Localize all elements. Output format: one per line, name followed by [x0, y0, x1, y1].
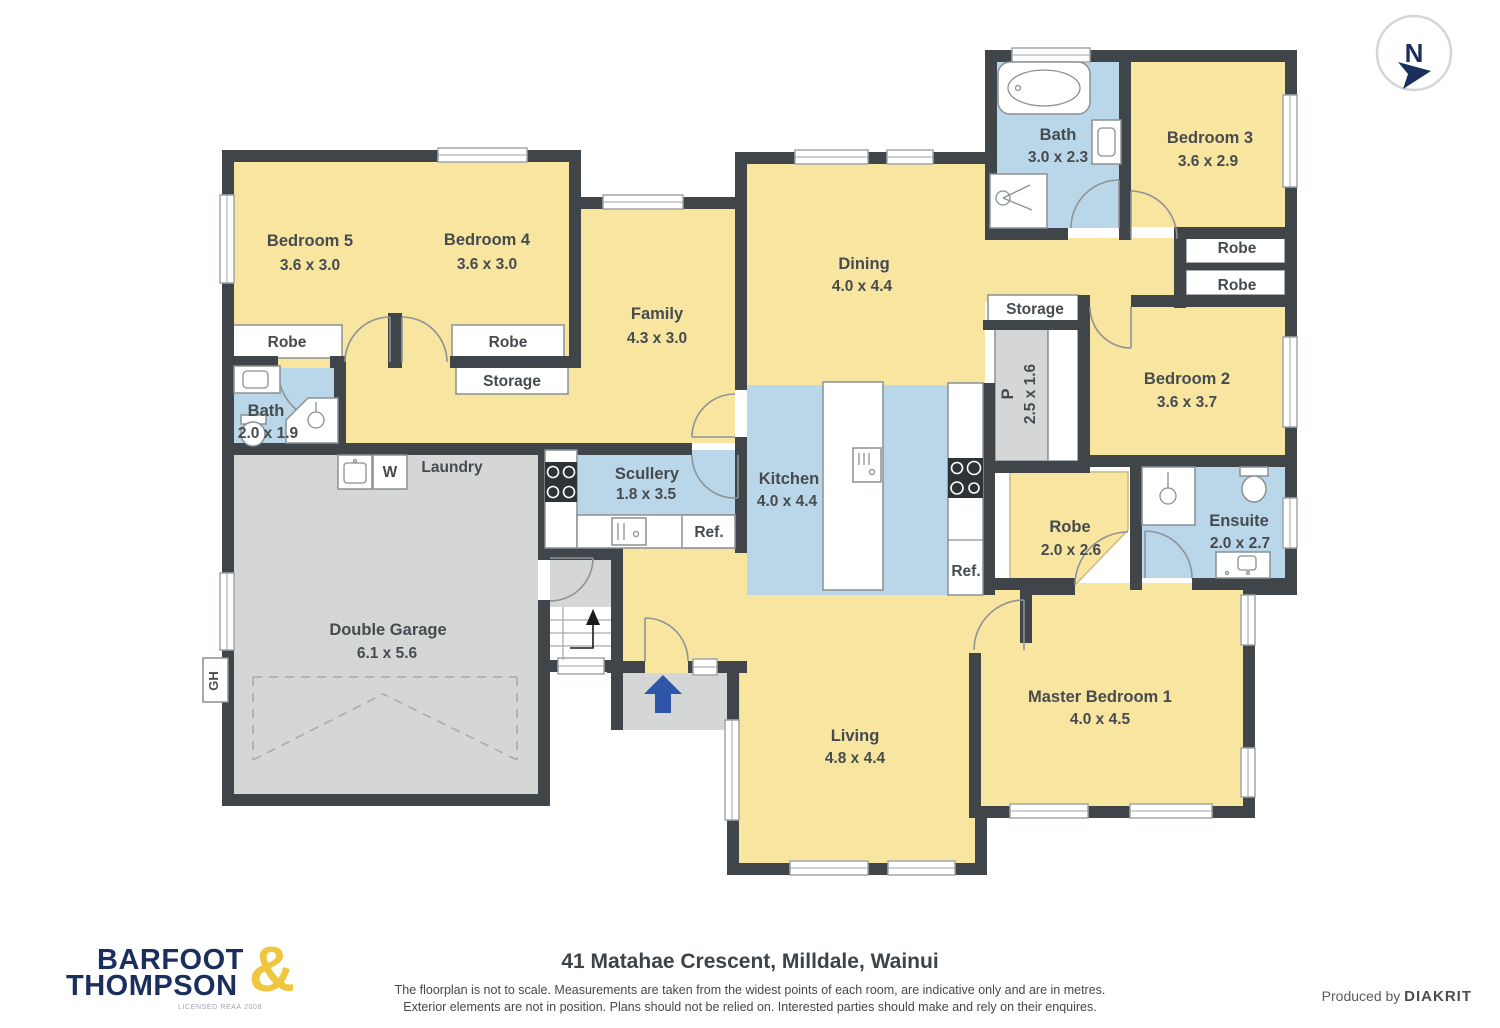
ensuite-dims: 2.0 x 2.7 [1210, 535, 1270, 552]
bedroom4-dims: 3.6 x 3.0 [457, 256, 517, 273]
garage-dims: 6.1 x 5.6 [357, 645, 418, 662]
storage-bed4-label: Storage [483, 373, 541, 390]
robe4-label: Robe [489, 334, 528, 351]
kitchen-dims: 4.0 x 4.4 [757, 493, 818, 510]
disclaimer: The floorplan is not to scale. Measureme… [0, 982, 1500, 1016]
laundry-sink-icon [338, 455, 372, 489]
bedroom2-dims: 3.6 x 3.7 [1157, 394, 1217, 411]
sink-icon-scullery [612, 518, 646, 545]
family-label: Family [631, 305, 684, 323]
dining-label: Dining [838, 255, 889, 273]
master-bedroom-label: Master Bedroom 1 [1028, 688, 1172, 706]
laundry-label: Laundry [421, 459, 483, 476]
property-address: 41 Matahae Crescent, Milldale, Wainui [0, 950, 1500, 974]
produced-by-text: Produced by [1322, 988, 1401, 1004]
bath-top-dims: 3.0 x 2.3 [1028, 149, 1089, 166]
kitchen-label: Kitchen [759, 470, 820, 488]
gh-label: GH [206, 671, 221, 691]
bedroom5-label: Bedroom 5 [267, 232, 353, 250]
bedroom4-label: Bedroom 4 [444, 231, 531, 249]
bathtub-icon [998, 62, 1090, 114]
disclaimer-line1: The floorplan is not to scale. Measureme… [0, 982, 1500, 999]
shower-icon-bath-top [990, 174, 1047, 228]
vanity-icon-bath-left [234, 366, 280, 393]
compass-n-label: N [1405, 38, 1424, 68]
disclaimer-line2: Exterior elements are not in position. P… [0, 999, 1500, 1016]
robe3-upper-label: Robe [1218, 240, 1257, 257]
ensuite-label: Ensuite [1209, 512, 1269, 530]
living-dims: 4.8 x 4.4 [825, 750, 886, 767]
toilet-icon-ensuite [1240, 467, 1268, 476]
robe5-label: Robe [268, 334, 307, 351]
robe-master-dims: 2.0 x 2.6 [1041, 542, 1102, 559]
fridge-scullery-label: Ref. [694, 524, 723, 541]
living-label: Living [831, 727, 880, 745]
bedroom3-label: Bedroom 3 [1167, 129, 1253, 147]
robe3-lower-label: Robe [1218, 277, 1257, 294]
floorplan: N Bedroom 5 3.6 x 3.0 Bedroom 4 3.6 x 3.… [0, 0, 1500, 1028]
producer-name: DIAKRIT [1404, 988, 1472, 1005]
bath-left-dims: 2.0 x 1.9 [238, 425, 299, 442]
scullery-label: Scullery [615, 465, 680, 483]
robe-master-label: Robe [1049, 518, 1090, 536]
vanity-icon-bath-top [1092, 120, 1121, 164]
storage-hall-label: Storage [1006, 301, 1064, 318]
washer-label: W [383, 464, 398, 481]
bedroom5-dims: 3.6 x 3.0 [280, 257, 340, 274]
kitchen-island [823, 382, 883, 590]
garage-label: Double Garage [329, 621, 446, 639]
scullery-dims: 1.8 x 3.5 [616, 486, 677, 503]
bath-top-label: Bath [1040, 126, 1077, 144]
produced-by: Produced by DIAKRIT [1322, 988, 1472, 1005]
dining-dims: 4.0 x 4.4 [832, 278, 893, 295]
fridge-kitchen-label: Ref. [951, 563, 980, 580]
bedroom3-dims: 3.6 x 2.9 [1178, 153, 1239, 170]
bath-left-label: Bath [248, 402, 285, 420]
family-dims: 4.3 x 3.0 [627, 330, 687, 347]
sink-icon-island [853, 448, 881, 482]
floorplan-page: N Bedroom 5 3.6 x 3.0 Bedroom 4 3.6 x 3.… [0, 0, 1500, 1028]
compass: N [1377, 16, 1451, 90]
pantry-label: P [999, 388, 1017, 399]
master-bedroom-dims: 4.0 x 4.5 [1070, 711, 1131, 728]
pantry-dims: 2.5 x 1.6 [1022, 363, 1039, 424]
bedroom2-label: Bedroom 2 [1144, 370, 1230, 388]
